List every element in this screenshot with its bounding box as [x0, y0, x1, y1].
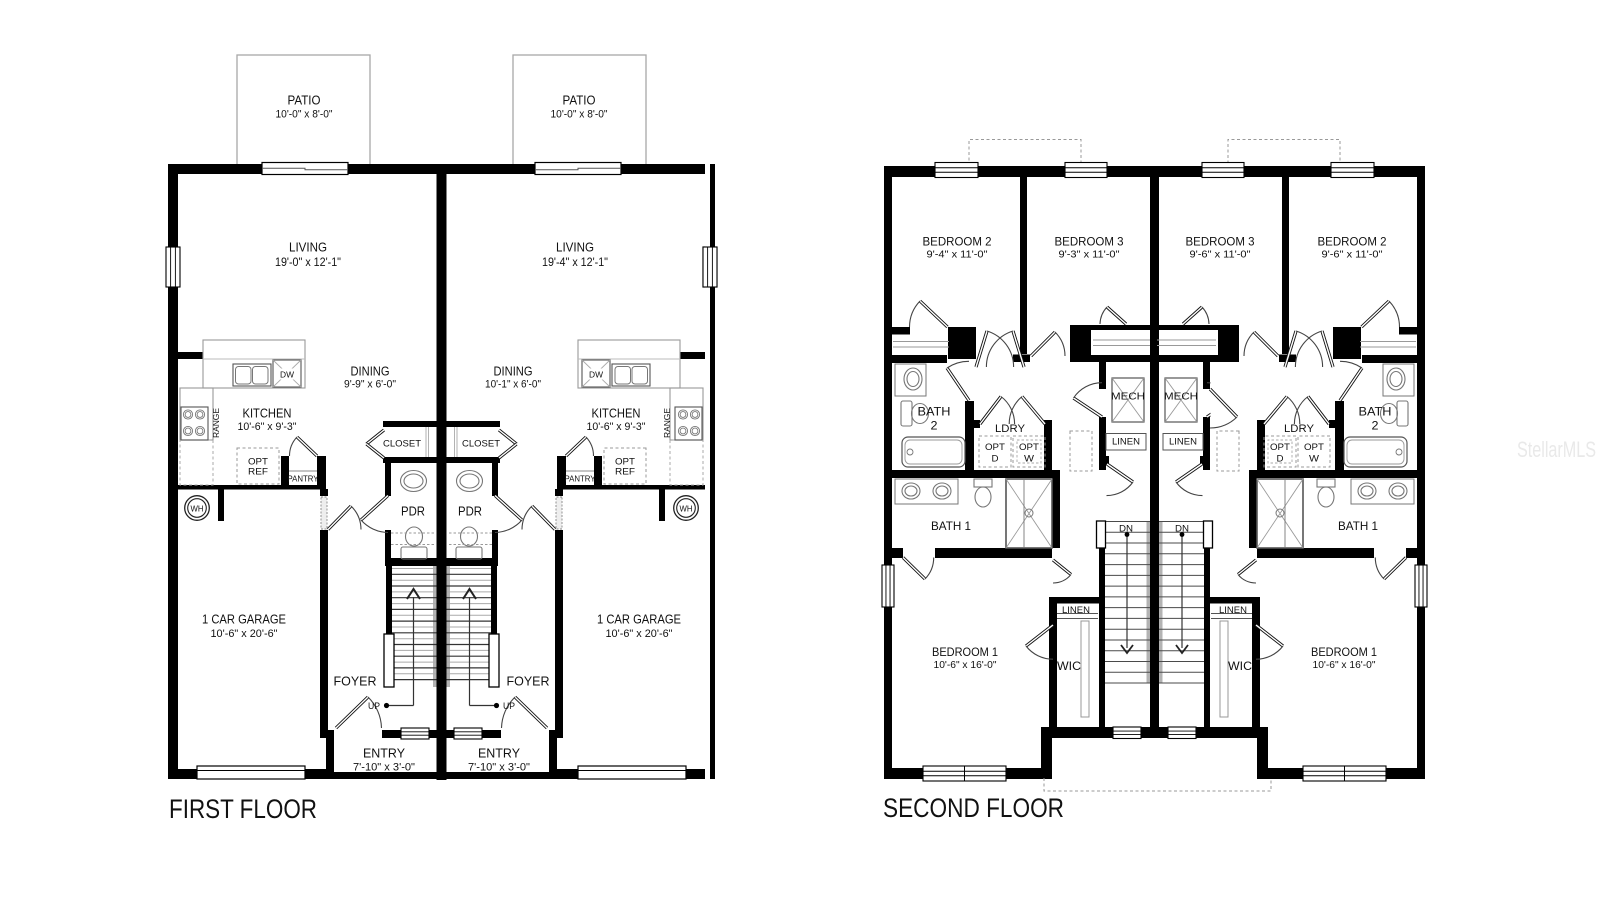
svg-text:BEDROOM 1: BEDROOM 1 — [932, 645, 998, 659]
svg-text:PATIO: PATIO — [563, 93, 596, 107]
svg-text:10'-0" x 8'-0": 10'-0" x 8'-0" — [276, 108, 333, 120]
svg-text:9'-6" x 11'-0": 9'-6" x 11'-0" — [1190, 249, 1251, 261]
svg-text:PATIO: PATIO — [288, 93, 321, 107]
svg-text:W: W — [1309, 454, 1320, 464]
svg-text:OPT: OPT — [985, 442, 1006, 452]
svg-text:DW: DW — [589, 370, 603, 380]
svg-text:10'-6" x 9'-3": 10'-6" x 9'-3" — [238, 421, 297, 433]
svg-text:WH: WH — [191, 504, 204, 513]
svg-text:2: 2 — [1372, 419, 1379, 433]
svg-text:10'-6" x 9'-3": 10'-6" x 9'-3" — [587, 421, 646, 433]
svg-text:LDRY: LDRY — [1284, 423, 1315, 435]
svg-text:KITCHEN: KITCHEN — [243, 406, 292, 421]
svg-text:FIRST FLOOR: FIRST FLOOR — [169, 794, 317, 824]
svg-text:DW: DW — [280, 370, 294, 380]
svg-text:9'-9" x 6'-0": 9'-9" x 6'-0" — [344, 378, 396, 390]
svg-text:9'-6" x 11'-0": 9'-6" x 11'-0" — [1322, 249, 1383, 261]
svg-text:10'-6" x 16'-0": 10'-6" x 16'-0" — [1313, 659, 1376, 671]
svg-text:BEDROOM 2: BEDROOM 2 — [1318, 235, 1387, 249]
svg-text:7'-10" x 3'-0": 7'-10" x 3'-0" — [353, 761, 415, 773]
svg-text:1 CAR GARAGE: 1 CAR GARAGE — [202, 612, 286, 626]
svg-text:W: W — [1024, 454, 1035, 464]
svg-text:MECH: MECH — [1111, 391, 1145, 403]
svg-text:LIVING: LIVING — [556, 240, 594, 255]
svg-text:BEDROOM 3: BEDROOM 3 — [1055, 235, 1124, 249]
svg-text:MECH: MECH — [1164, 391, 1198, 403]
svg-text:WIC: WIC — [1057, 659, 1081, 673]
svg-text:SECOND FLOOR: SECOND FLOOR — [883, 793, 1064, 823]
svg-text:ENTRY: ENTRY — [478, 746, 521, 760]
svg-text:9'-4" x 11'-0": 9'-4" x 11'-0" — [927, 249, 988, 261]
svg-text:LDRY: LDRY — [995, 423, 1026, 435]
svg-text:7'-10" x 3'-0": 7'-10" x 3'-0" — [468, 761, 530, 773]
svg-text:BEDROOM 1: BEDROOM 1 — [1311, 645, 1377, 659]
svg-text:PANTRY: PANTRY — [565, 474, 596, 484]
svg-text:WH: WH — [680, 504, 693, 513]
svg-text:BATH: BATH — [1359, 405, 1392, 419]
svg-text:2: 2 — [931, 419, 938, 433]
svg-text:D: D — [992, 454, 1000, 464]
svg-text:StellarMLS: StellarMLS — [1517, 437, 1596, 462]
svg-text:LINEN: LINEN — [1169, 436, 1197, 447]
svg-text:LIVING: LIVING — [289, 240, 327, 255]
svg-text:FOYER: FOYER — [507, 674, 550, 688]
svg-text:REF: REF — [248, 467, 269, 477]
svg-text:LINEN: LINEN — [1062, 605, 1090, 616]
svg-text:DN: DN — [1119, 523, 1133, 534]
svg-text:10'-6" x 20'-6": 10'-6" x 20'-6" — [606, 628, 673, 640]
svg-text:10'-6" x 20'-6": 10'-6" x 20'-6" — [211, 628, 278, 640]
svg-text:LINEN: LINEN — [1112, 436, 1140, 447]
svg-text:10'-6" x 16'-0": 10'-6" x 16'-0" — [934, 659, 997, 671]
svg-text:19'-4" x 12'-1": 19'-4" x 12'-1" — [542, 257, 608, 269]
svg-text:FOYER: FOYER — [334, 674, 377, 688]
svg-text:9'-3" x 11'-0": 9'-3" x 11'-0" — [1059, 249, 1120, 261]
svg-text:UP: UP — [368, 701, 380, 711]
svg-text:D: D — [1277, 454, 1285, 464]
svg-text:BATH 1: BATH 1 — [1338, 519, 1378, 533]
svg-text:CLOSET: CLOSET — [462, 438, 500, 449]
svg-text:RANGE: RANGE — [662, 408, 672, 438]
svg-text:RANGE: RANGE — [211, 408, 221, 438]
svg-text:OPT: OPT — [615, 457, 636, 467]
svg-text:1 CAR GARAGE: 1 CAR GARAGE — [597, 612, 681, 626]
svg-text:BATH: BATH — [918, 405, 951, 419]
svg-text:19'-0" x 12'-1": 19'-0" x 12'-1" — [275, 257, 341, 269]
svg-text:BEDROOM 3: BEDROOM 3 — [1186, 235, 1255, 249]
svg-text:OPT: OPT — [1270, 442, 1291, 452]
svg-text:PDR: PDR — [401, 504, 425, 519]
svg-text:LINEN: LINEN — [1219, 605, 1247, 616]
svg-text:UP: UP — [503, 701, 515, 711]
svg-text:DINING: DINING — [494, 364, 533, 379]
svg-text:OPT: OPT — [248, 457, 269, 467]
svg-text:DINING: DINING — [351, 364, 390, 379]
svg-text:BEDROOM 2: BEDROOM 2 — [923, 235, 992, 249]
svg-text:OPT: OPT — [1304, 442, 1325, 452]
svg-text:BATH 1: BATH 1 — [931, 519, 971, 533]
svg-text:ENTRY: ENTRY — [363, 746, 406, 760]
svg-text:OPT: OPT — [1019, 442, 1040, 452]
svg-text:KITCHEN: KITCHEN — [592, 406, 641, 421]
svg-text:WIC: WIC — [1228, 659, 1252, 673]
svg-text:DN: DN — [1175, 523, 1189, 534]
svg-text:REF: REF — [615, 467, 636, 477]
svg-text:CLOSET: CLOSET — [383, 438, 421, 449]
svg-text:10'-0" x 8'-0": 10'-0" x 8'-0" — [551, 108, 608, 120]
svg-text:PANTRY: PANTRY — [288, 474, 319, 484]
svg-text:PDR: PDR — [458, 504, 482, 519]
svg-text:10'-1" x 6'-0": 10'-1" x 6'-0" — [485, 378, 541, 390]
